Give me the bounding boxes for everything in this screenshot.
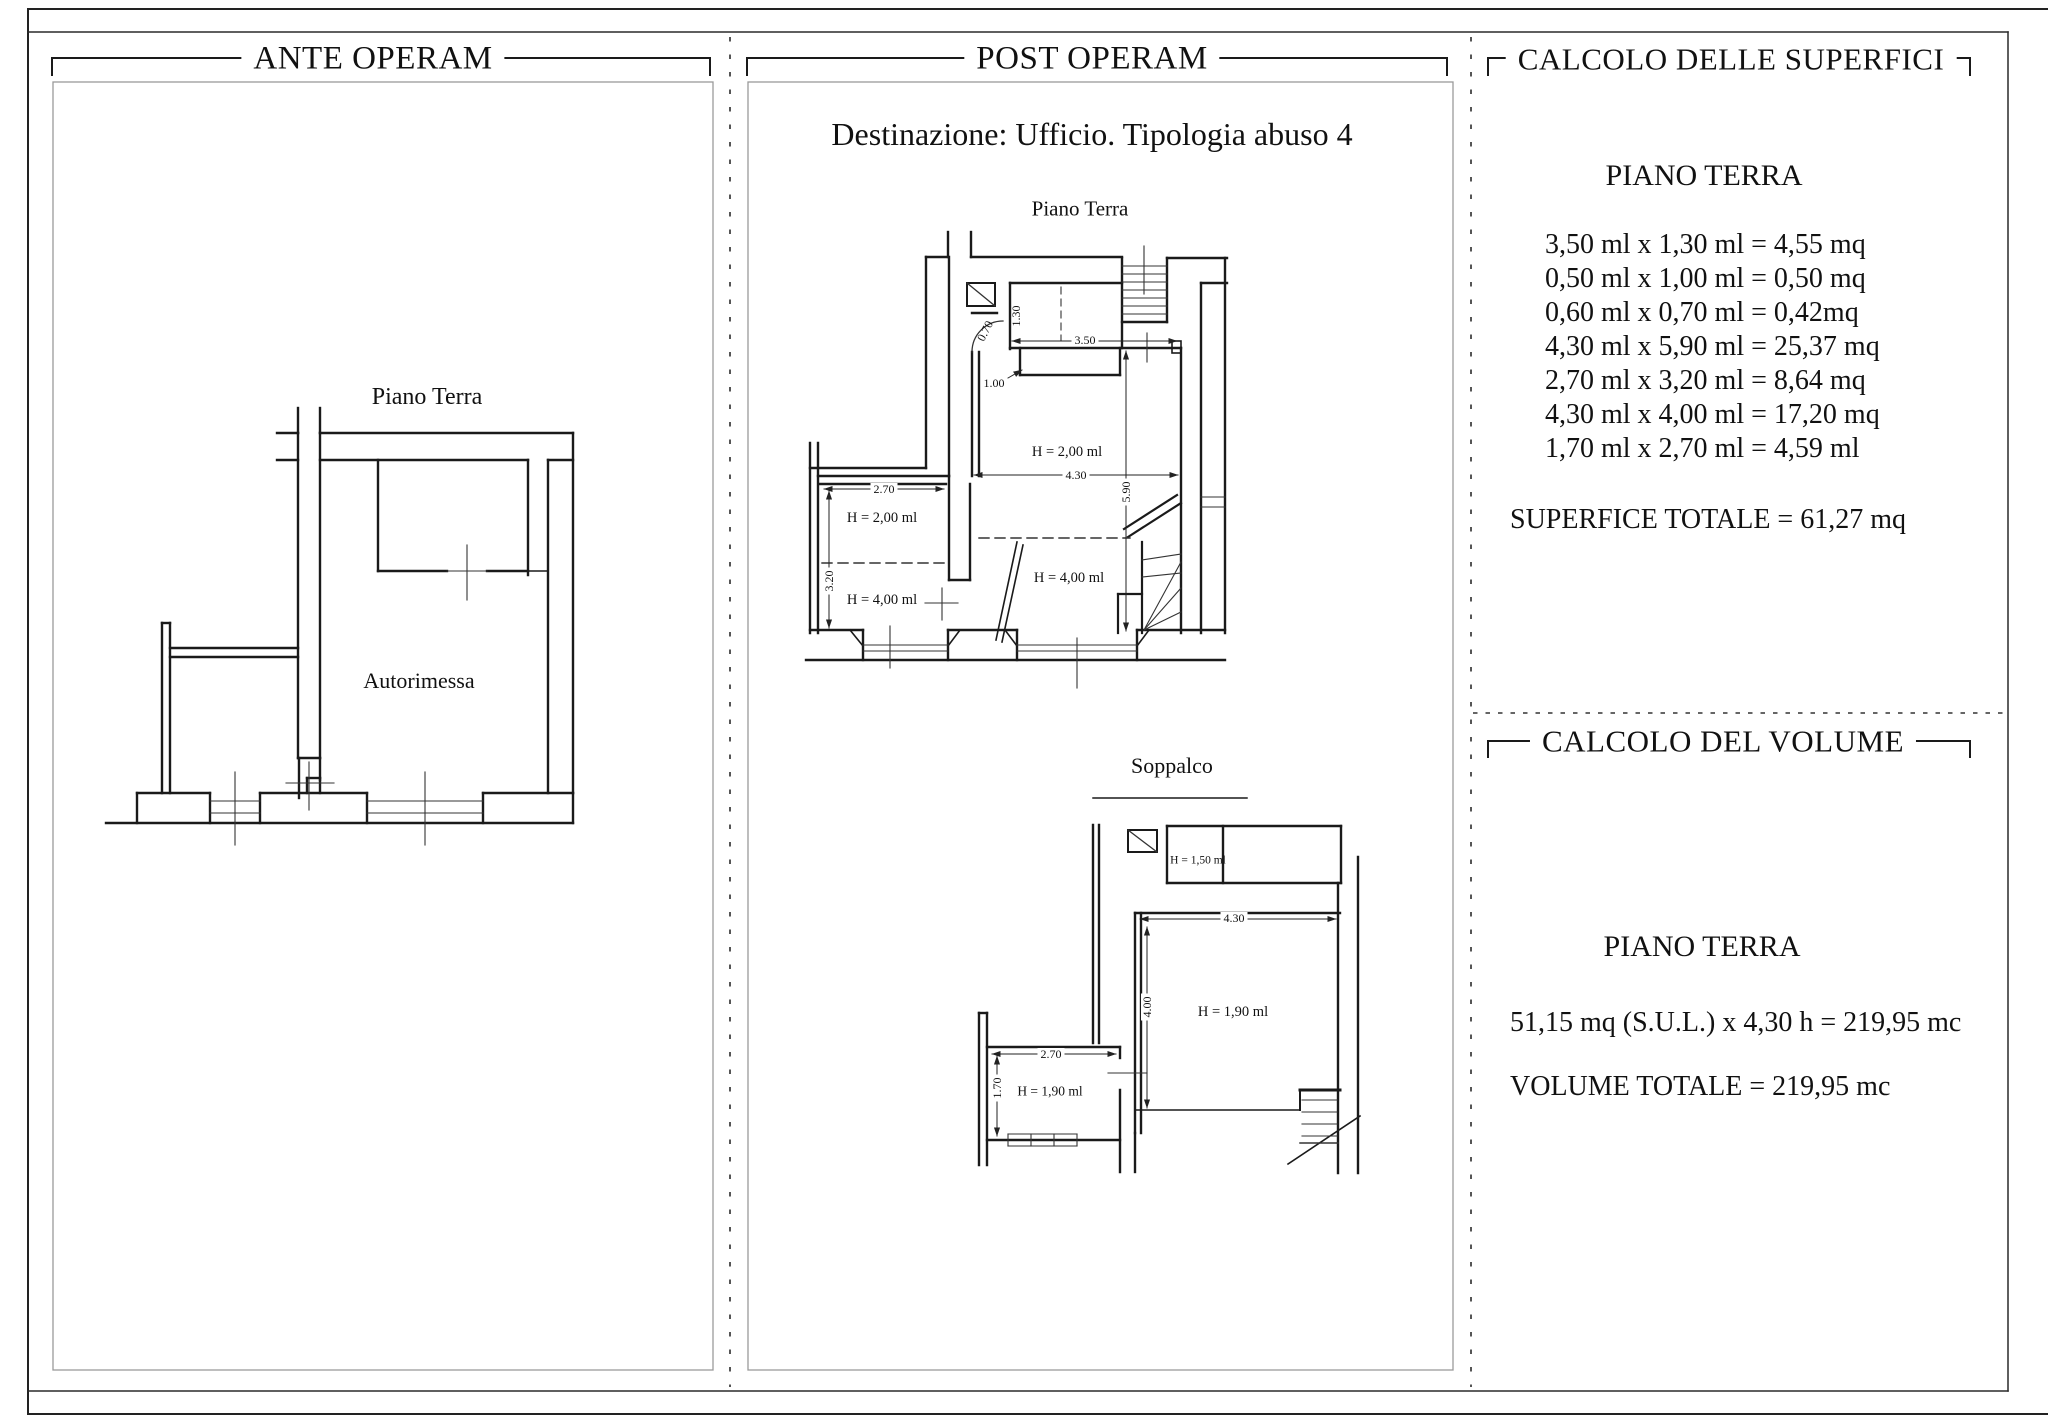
superfici-row: 0,50 ml x 1,00 ml = 0,50 mq xyxy=(1545,262,1880,296)
volume-panel-title: CALCOLO DEL VOLUME xyxy=(1530,726,1916,757)
soppalco-dim-lines xyxy=(992,919,1336,1136)
height-label-soppalco-top: H = 1,50 ml xyxy=(1170,855,1226,867)
height-label-soppalco-left: H = 1,90 ml xyxy=(1017,1084,1082,1098)
superfici-total: SUPERFICE TOTALE = 61,27 mq xyxy=(1510,504,1906,536)
superfici-rows: 3,50 ml x 1,30 ml = 4,55 mq 0,50 ml x 1,… xyxy=(1545,228,1880,466)
ante-panel-frame xyxy=(53,82,713,1370)
height-label-left-upper: H = 2,00 ml xyxy=(847,511,917,526)
post-piano-terra-label: Piano Terra xyxy=(1032,199,1129,220)
height-label-soppalco-main: H = 1,90 ml xyxy=(1198,1005,1268,1020)
superfici-panel-title: CALCOLO DELLE SUPERFICI xyxy=(1506,44,1957,75)
ante-room-label: Autorimessa xyxy=(363,670,474,692)
ante-plan-label: Piano Terra xyxy=(372,385,483,409)
dim-3-50: 3.50 xyxy=(1072,334,1099,346)
superfici-row: 0,60 ml x 0,70 ml = 0,42mq xyxy=(1545,296,1880,330)
dim-soppalco-1-70: 1.70 xyxy=(991,1075,1003,1102)
superfici-row: 2,70 ml x 3,20 ml = 8,64 mq xyxy=(1545,364,1880,398)
height-label-right-lower: H = 4,00 ml xyxy=(1034,571,1104,586)
superfici-row: 1,70 ml x 2,70 ml = 4,59 ml xyxy=(1545,432,1880,466)
height-label-main: H = 2,00 ml xyxy=(1032,445,1102,460)
volume-total: VOLUME TOTALE = 219,95 mc xyxy=(1510,1071,1890,1103)
soppalco-label: Soppalco xyxy=(1131,755,1213,777)
post-panel-frame xyxy=(748,82,1453,1370)
dim-soppalco-4-00: 4.00 xyxy=(1141,994,1153,1021)
dim-soppalco-2-70: 2.70 xyxy=(1038,1048,1065,1060)
ante-floor-plan-thin xyxy=(210,545,487,845)
ante-floor-plan xyxy=(106,408,573,823)
post-subtitle: Destinazione: Ufficio. Tipologia abuso 4 xyxy=(831,118,1352,150)
superfici-row: 4,30 ml x 5,90 ml = 25,37 mq xyxy=(1545,330,1880,364)
dim-4-30: 4.30 xyxy=(1063,469,1090,481)
dim-1-30: 1.30 xyxy=(1010,306,1022,327)
dim-2-70: 2.70 xyxy=(871,483,898,495)
dotted-separators xyxy=(730,38,1471,1386)
soppalco-thin xyxy=(1008,830,1338,1146)
superfici-row: 3,50 ml x 1,30 ml = 4,55 mq xyxy=(1545,228,1880,262)
volume-formula: 51,15 mq (S.U.L.) x 4,30 h = 219,95 mc xyxy=(1510,1007,1961,1039)
dim-1-00: 1.00 xyxy=(984,377,1005,389)
dim-3-20: 3.20 xyxy=(823,568,835,595)
superfici-heading: PIANO TERRA xyxy=(1606,161,1803,191)
dim-soppalco-4-30: 4.30 xyxy=(1221,912,1248,924)
sheet-linework xyxy=(0,0,2048,1421)
height-label-left-lower: H = 4,00 ml xyxy=(847,593,917,608)
dim-5-90: 5.90 xyxy=(1120,479,1132,506)
ante-panel-title: ANTE OPERAM xyxy=(241,43,504,76)
post-panel-title: POST OPERAM xyxy=(964,43,1219,76)
superfici-row: 4,30 ml x 4,00 ml = 17,20 mq xyxy=(1545,398,1880,432)
volume-heading: PIANO TERRA xyxy=(1604,932,1801,962)
drawing-sheet: ANTE OPERAM POST OPERAM CALCOLO DELLE SU… xyxy=(0,0,2048,1421)
